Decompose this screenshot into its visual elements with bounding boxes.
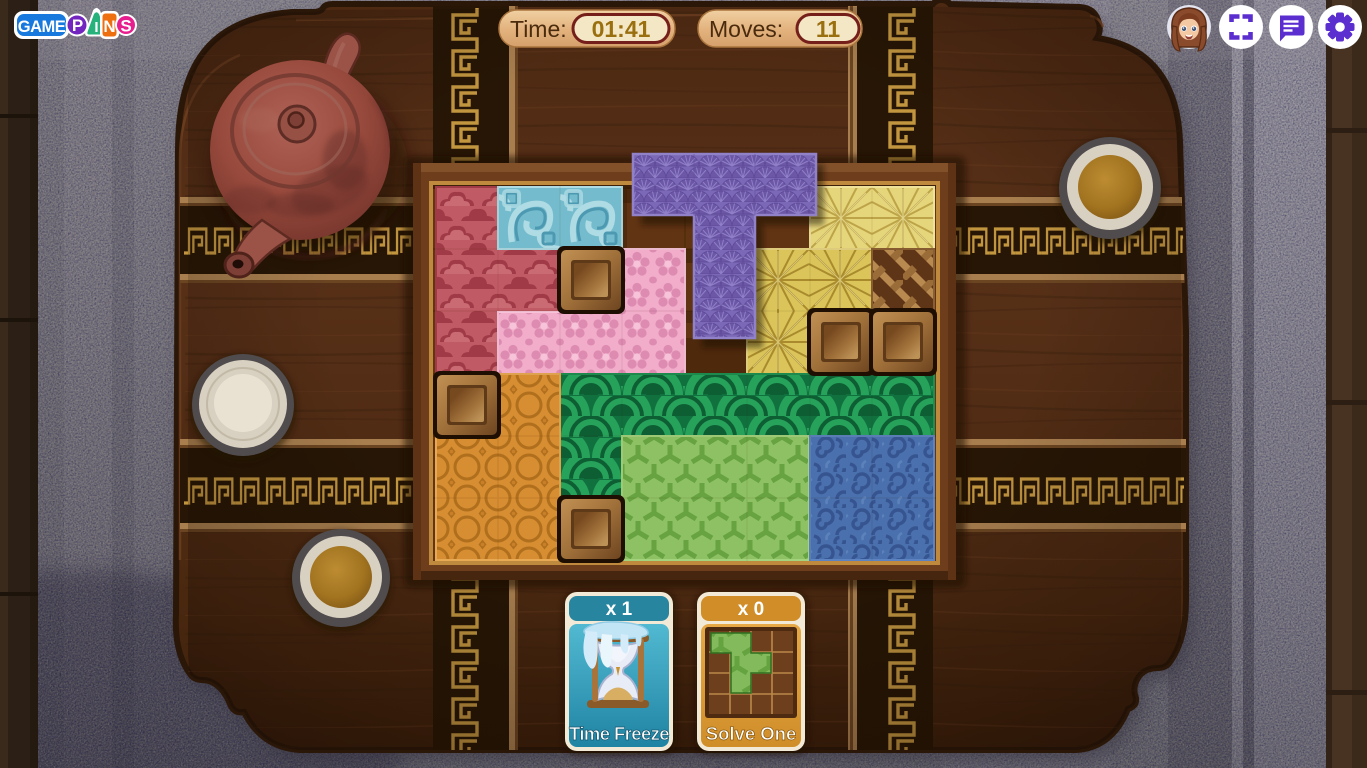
svg-text:Time:: Time:	[510, 16, 567, 42]
svg-text:11: 11	[816, 16, 841, 42]
svg-text:N: N	[103, 17, 115, 36]
svg-text:Solve One: Solve One	[706, 723, 796, 744]
svg-text:x 1: x 1	[606, 599, 633, 620]
svg-text:S: S	[120, 17, 131, 36]
svg-text:GAME: GAME	[18, 18, 66, 36]
svg-text:Moves:: Moves:	[709, 16, 783, 42]
svg-text:I: I	[94, 19, 98, 36]
svg-text:x 0: x 0	[738, 599, 764, 620]
svg-text:01:41: 01:41	[592, 16, 651, 42]
svg-text:Time Freeze: Time Freeze	[569, 723, 669, 744]
svg-text:P: P	[72, 16, 83, 35]
